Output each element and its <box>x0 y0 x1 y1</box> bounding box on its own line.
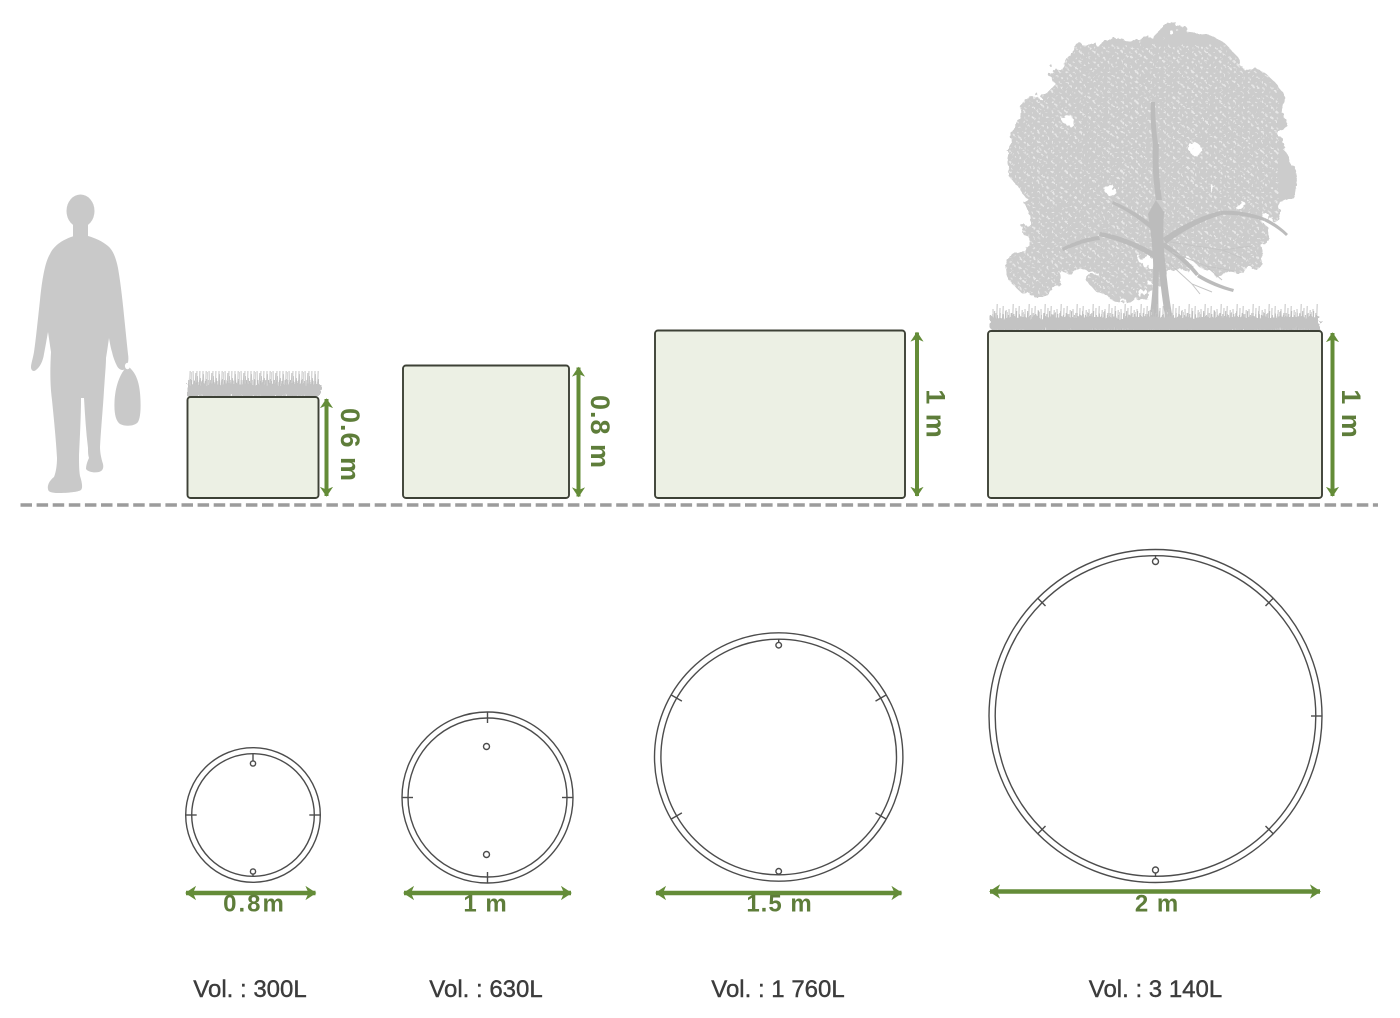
svg-text:Vol. : 1 760L: Vol. : 1 760L <box>711 976 844 1003</box>
svg-text:0.8 m: 0.8 m <box>585 395 615 469</box>
svg-text:0.6 m: 0.6 m <box>335 408 365 482</box>
svg-text:Vol. : 630L: Vol. : 630L <box>429 976 542 1003</box>
svg-text:1 m: 1 m <box>920 389 950 439</box>
svg-text:0.8m: 0.8m <box>223 891 286 918</box>
svg-text:1 m: 1 m <box>463 891 507 918</box>
svg-text:Vol. : 300L: Vol. : 300L <box>193 976 306 1003</box>
svg-text:1.5 m: 1.5 m <box>746 891 812 918</box>
svg-text:2 m: 2 m <box>1135 891 1179 918</box>
svg-text:1 m: 1 m <box>1336 389 1366 439</box>
svg-text:Vol. : 3 140L: Vol. : 3 140L <box>1089 976 1222 1003</box>
